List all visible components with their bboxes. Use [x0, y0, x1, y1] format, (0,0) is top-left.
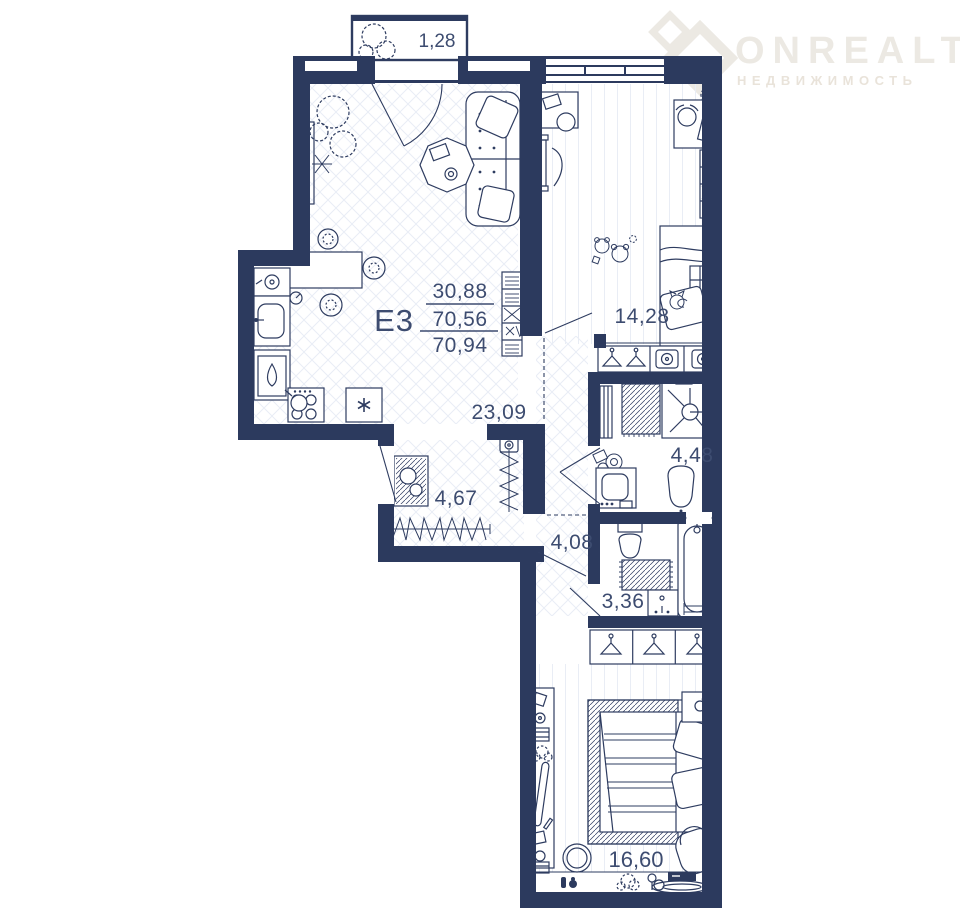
loggia-items — [561, 872, 708, 893]
shelf-unit — [502, 272, 522, 356]
bath-mat — [622, 381, 660, 437]
kitchen-sink — [254, 296, 290, 346]
label-living-area: 30,88 — [432, 280, 487, 303]
coffee-table — [420, 138, 474, 192]
hall-wardrobe — [590, 630, 718, 664]
label-shower-room-area: 4,48 — [671, 444, 714, 467]
label-kids-room-area: 14,28 — [614, 305, 669, 328]
label-heated-area: 70,56 — [432, 308, 487, 331]
label-bedroom-area: 16,60 — [608, 847, 663, 872]
label-hall-area: 23,09 — [471, 401, 526, 424]
door-opening — [378, 446, 394, 504]
label-total-area: 70,94 — [432, 334, 487, 357]
window — [468, 61, 530, 71]
pillow — [477, 185, 515, 223]
water-heater — [254, 350, 290, 400]
door-opening — [686, 512, 712, 524]
stove — [285, 388, 324, 422]
label-unit-code: E3 — [374, 303, 414, 338]
sofa — [466, 92, 520, 226]
floor-plan-page: ONREALT НЕДВИЖИМОСТЬ — [0, 0, 960, 910]
toilet — [668, 466, 694, 513]
label-bathroom-area: 3,36 — [602, 590, 645, 613]
tv-icon — [668, 872, 696, 881]
bath-mat — [619, 560, 673, 590]
kids-wardrobe — [598, 343, 718, 372]
bathroom-sink — [596, 468, 636, 508]
watermark-subtitle: НЕДВИЖИМОСТЬ — [737, 73, 917, 88]
label-corridor-area: 4,08 — [551, 531, 594, 554]
plant-icon — [617, 874, 639, 890]
kids-window — [546, 56, 664, 83]
pan-icon — [291, 395, 307, 411]
kids-desk — [536, 92, 578, 131]
watermark-brand: ONREALT — [735, 30, 960, 72]
fridge — [346, 388, 382, 422]
label-balcony-area: 1,28 — [419, 31, 456, 52]
floor-plan: ONREALT НЕДВИЖИМОСТЬ — [0, 0, 960, 910]
bathroom-sink — [648, 590, 678, 616]
label-closet-area: 4,67 — [435, 487, 478, 510]
balcony-threshold — [375, 80, 458, 83]
window — [305, 61, 357, 71]
shoes-icon — [561, 877, 577, 888]
washing-machine — [394, 456, 428, 506]
iron-icon — [500, 438, 518, 452]
